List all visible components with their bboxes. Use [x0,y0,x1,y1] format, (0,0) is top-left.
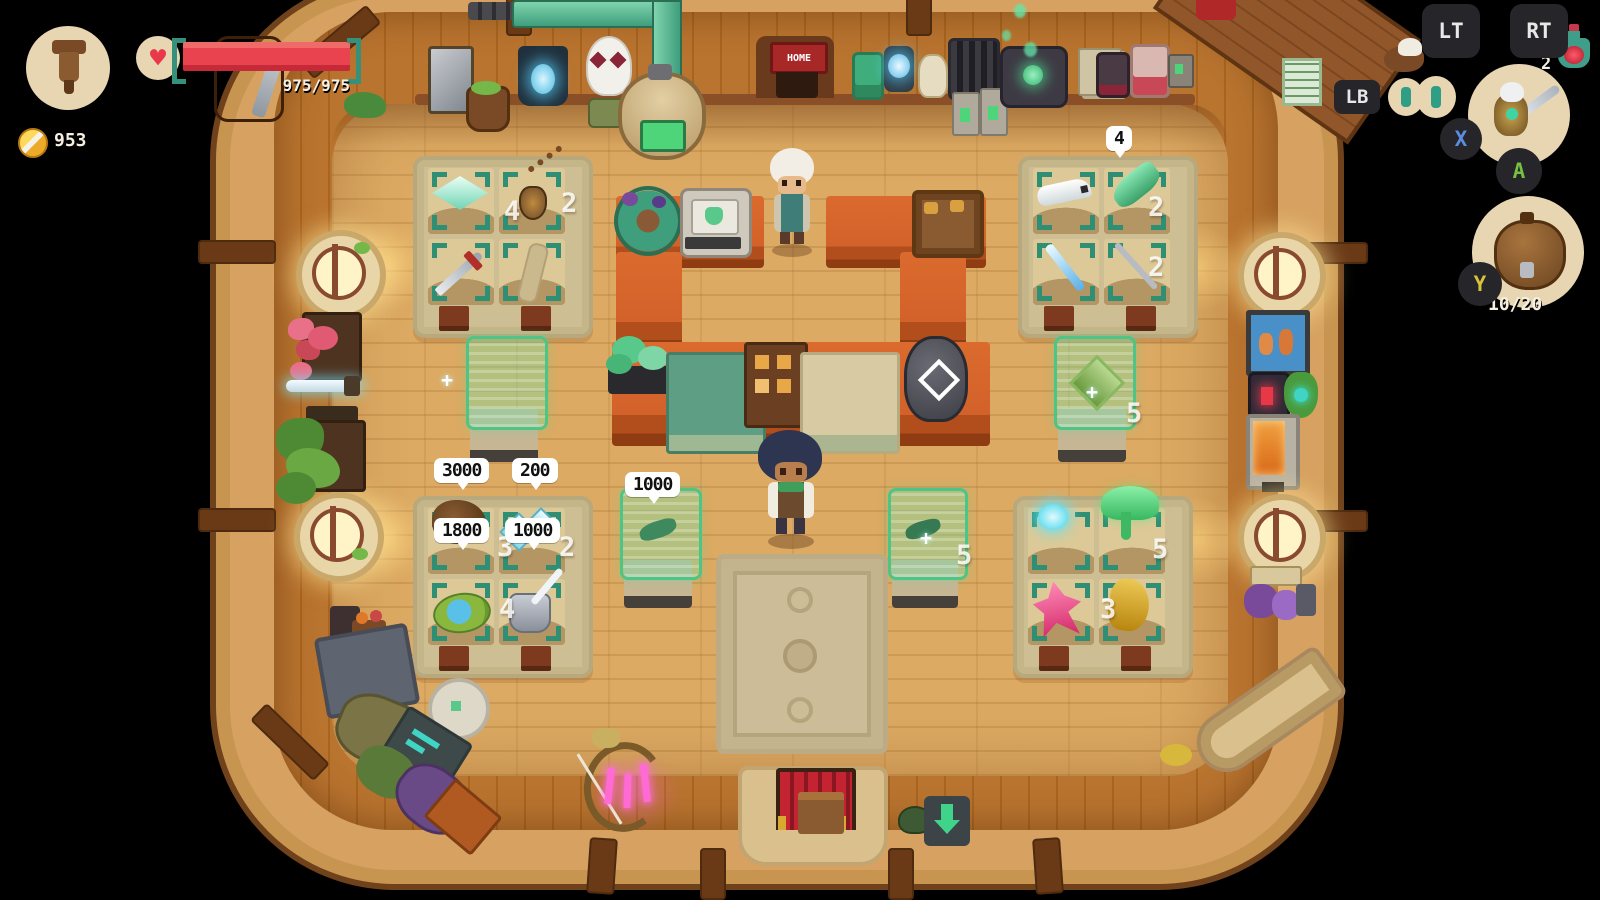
side-shelf [1250,566,1302,586]
button-prompt-x[interactable]: X [1440,118,1482,160]
item-amulet [519,186,547,220]
hull-beam [586,837,618,895]
amulet-icon [64,80,74,94]
stock-quantity: 2 [1148,192,1164,223]
price-bubble: 1000 [625,472,680,497]
stock-quantity: 2 [559,532,575,563]
player-character [758,430,824,552]
ivy-plant [276,472,316,504]
player-shadow [768,534,814,549]
plant-creature [1284,372,1318,418]
canister-red [1130,44,1170,98]
pot-fruit [356,612,368,624]
price-value: 200 [520,460,550,481]
box-contents [924,202,938,214]
window-leaf [354,242,370,254]
display-table-bottom-right[interactable] [1013,496,1193,678]
coin-purse-icon [705,207,723,225]
price-bubble: 200 [512,458,558,483]
grey-device [1296,584,1316,616]
lamp-bulb [888,54,910,78]
window-pane [1254,510,1306,562]
wreath-flower [622,192,638,206]
flowers-pink [308,326,338,350]
a-label: A [1513,159,1526,183]
hull-beam [198,240,276,264]
player-body [768,482,814,518]
item-slot[interactable] [428,168,494,234]
npc-eye [782,180,787,186]
item-slime-drip [1121,512,1131,540]
player-legs [776,518,787,534]
table-leg [521,306,551,331]
glow-lamp [884,46,914,92]
lb-label: LB [1346,86,1369,108]
floor-rug [716,554,888,754]
loft-cloth [1196,0,1236,20]
down-arrow-icon [934,820,960,847]
pipe-metal-segment [468,2,516,20]
curtain-post [778,816,786,830]
pink-arrow [623,774,631,808]
stock-quantity: 2 [561,188,577,219]
companion-cap [1398,38,1422,56]
potion-jar-green [852,52,884,100]
game-screen: HOME [0,0,1600,900]
window-frame-bar [330,506,336,558]
npc-legs [794,232,804,244]
table-leg [1126,306,1156,331]
hull-beam [700,848,726,900]
weapon-helm [1500,82,1524,102]
display-case-left[interactable] [466,336,548,430]
crate-glyph [405,738,425,754]
sword-hilt [344,376,360,396]
entrance-counter [798,792,844,834]
wreath-flower [652,196,666,208]
stock-quantity: 4 [499,594,515,625]
item-cyan-orb [1038,504,1068,530]
pip-bar [1401,87,1411,107]
rug-circle [787,697,813,723]
table-leg [1044,306,1074,331]
entrance-mat [924,796,970,846]
pot-fruit [370,610,382,622]
round-window [294,492,384,582]
fruit-pile [1160,744,1192,766]
display-table-top-left[interactable] [413,156,593,338]
display-table-top-right[interactable] [1018,156,1198,338]
item-slot[interactable] [1033,239,1099,305]
table-leg [439,306,469,331]
tank-stand [1262,482,1284,492]
window-frame-bar [332,244,338,296]
sword-hilt [463,250,483,271]
sack-buckle [1520,262,1534,278]
price-value: 4 [1114,128,1124,149]
item-pond-mirror [430,589,493,637]
forge-particle [1024,42,1037,57]
charge-pip [1416,76,1456,118]
glow-tank [1246,414,1300,490]
item-slot[interactable] [1028,579,1094,645]
price-value: 1000 [513,520,552,541]
amulet-icon [59,52,79,82]
button-prompt-lt[interactable]: LT [1422,4,1480,58]
item-pink-crystal [1030,577,1087,640]
stock-quantity: 5 [1152,534,1168,565]
window-pane [1254,248,1306,300]
doorway-opening[interactable] [776,72,818,98]
round-window [1238,232,1326,320]
round-window [296,230,386,320]
price-value: 1800 [442,520,481,541]
player-scarf [778,482,804,492]
amulet-slot[interactable] [26,26,110,110]
wreath-display [614,186,682,256]
table-leg [1039,646,1069,671]
price-bubble: 1000 [505,518,560,543]
button-prompt-lb[interactable]: LB [1334,80,1380,114]
player-legs [794,518,805,534]
dollhouse-window [777,355,791,369]
basket-greens [471,81,501,95]
grindstone-core [451,701,461,711]
stock-quantity: 5 [956,540,972,571]
new-item-plus: + [441,368,453,392]
stock-quantity: 5 [1126,398,1142,429]
hull-beam [198,508,276,532]
table-slots [1028,508,1165,645]
stock-quantity: 3 [1100,594,1116,625]
register-base [685,237,741,249]
rug-circle [783,639,817,673]
vat-window [640,120,686,152]
canister-screen [960,108,970,122]
cash-register[interactable] [680,188,752,258]
home-sign: HOME [770,42,828,74]
player-eye [780,468,786,475]
lt-label: LT [1438,19,1463,43]
coin-icon [18,128,48,158]
rim-plant [344,92,386,118]
alchemy-vat [618,72,706,160]
canister [952,92,980,136]
display-case-center-left[interactable] [620,488,702,580]
npc-legs [780,232,790,244]
table-leg [439,646,469,671]
window-frame-bar [1273,246,1279,296]
npc-face [778,176,806,194]
mask-eye [590,52,607,69]
stock-quantity: 2 [1148,252,1164,283]
window-leaf [352,548,368,560]
creature-gem [1294,388,1308,402]
hull-beam [1032,837,1064,895]
npc-old-man[interactable] [768,148,816,260]
ledger-book [1282,58,1322,106]
dollhouse-window [755,379,769,393]
heart-icon: ♥ [150,45,166,72]
dollhouse-window [755,355,769,369]
table-slots [1033,168,1170,305]
item-slot[interactable] [1033,168,1099,234]
item-red-hilt-sword [434,251,483,296]
price-bubble: 4 [1106,126,1132,151]
new-item-plus: + [920,526,932,550]
dollhouse-window [777,379,791,393]
diamond-emblem [918,359,960,401]
painting-blue [1246,310,1310,376]
gold-amount: 953 [54,130,87,151]
health-bar-fill [183,42,350,71]
mask-eye [610,52,627,69]
weapon-gem [1506,108,1518,120]
new-item-plus: + [1086,380,1098,404]
table-leg [521,646,551,671]
price-bubble: 3000 [434,458,489,483]
stock-quantity: 4 [504,196,520,227]
forge-particle [1014,4,1026,18]
bonsai-foliage [606,354,632,374]
bonsai-foliage [638,346,668,370]
bow-stand-top [592,728,620,748]
price-bubble: 1800 [434,518,489,543]
button-prompt-a[interactable]: A [1496,148,1542,194]
y-label: Y [1474,272,1487,296]
basket [466,86,510,132]
pip-bar [1431,86,1441,108]
tank-lava [1253,421,1285,475]
shrine-relic [1261,387,1273,405]
sack-tie [1520,212,1534,224]
medal-stone [904,336,968,422]
item-crystal-plate [432,176,488,210]
rt-label: RT [1526,19,1551,43]
item-slot[interactable] [428,579,494,645]
squid-eye [1080,185,1088,193]
rug-circle [787,587,813,613]
item-case-fish [637,516,678,543]
box-contents [950,200,964,212]
glowing-bottle-icon [531,64,555,94]
device-light [1175,64,1183,74]
npc-body [774,194,810,232]
hull-beam [906,0,932,36]
button-prompt-rt[interactable]: RT [1510,4,1568,58]
down-arrow-icon [941,804,953,820]
item-slot[interactable] [499,239,565,305]
painting-figure [1259,333,1273,355]
price-value: 1000 [633,474,672,495]
window-frame-bar [1273,508,1279,558]
device-green [1168,54,1194,88]
npc-shadow [772,244,812,257]
player-eye [796,468,802,475]
companion-icon [1384,38,1426,72]
item-white-squid [1036,177,1093,208]
health-text: 975/975 [240,76,350,95]
home-sign-label: HOME [787,53,811,64]
window-pane [312,246,366,300]
inventory-sack-icon [1494,220,1566,290]
jar-dark [1096,52,1130,98]
figurine [918,54,948,98]
lantern-banner [518,46,568,106]
register-screen [691,199,739,235]
canister-screen [988,106,998,120]
hull-beam [888,848,914,900]
forge-flame [1023,65,1043,85]
vat-cap [648,64,672,80]
table-leg [1121,646,1151,671]
npc-eye [796,180,801,186]
table-slots [428,168,565,305]
item-armor-chest [509,593,551,633]
player-face [775,462,807,482]
forge-particle [1002,30,1011,41]
item-slot[interactable] [428,239,494,305]
painting-figure [1279,329,1293,355]
mounted-sword [286,380,360,392]
goods-box [912,190,984,258]
item-crystal-wand [1044,243,1086,293]
x-label: X [1455,127,1468,151]
dollhouse [744,342,808,428]
item-pale-root [516,241,550,304]
button-prompt-y[interactable]: Y [1458,262,1502,306]
flowers-pink [290,362,312,380]
item-slot[interactable] [1028,508,1094,574]
price-value: 3000 [442,460,481,481]
